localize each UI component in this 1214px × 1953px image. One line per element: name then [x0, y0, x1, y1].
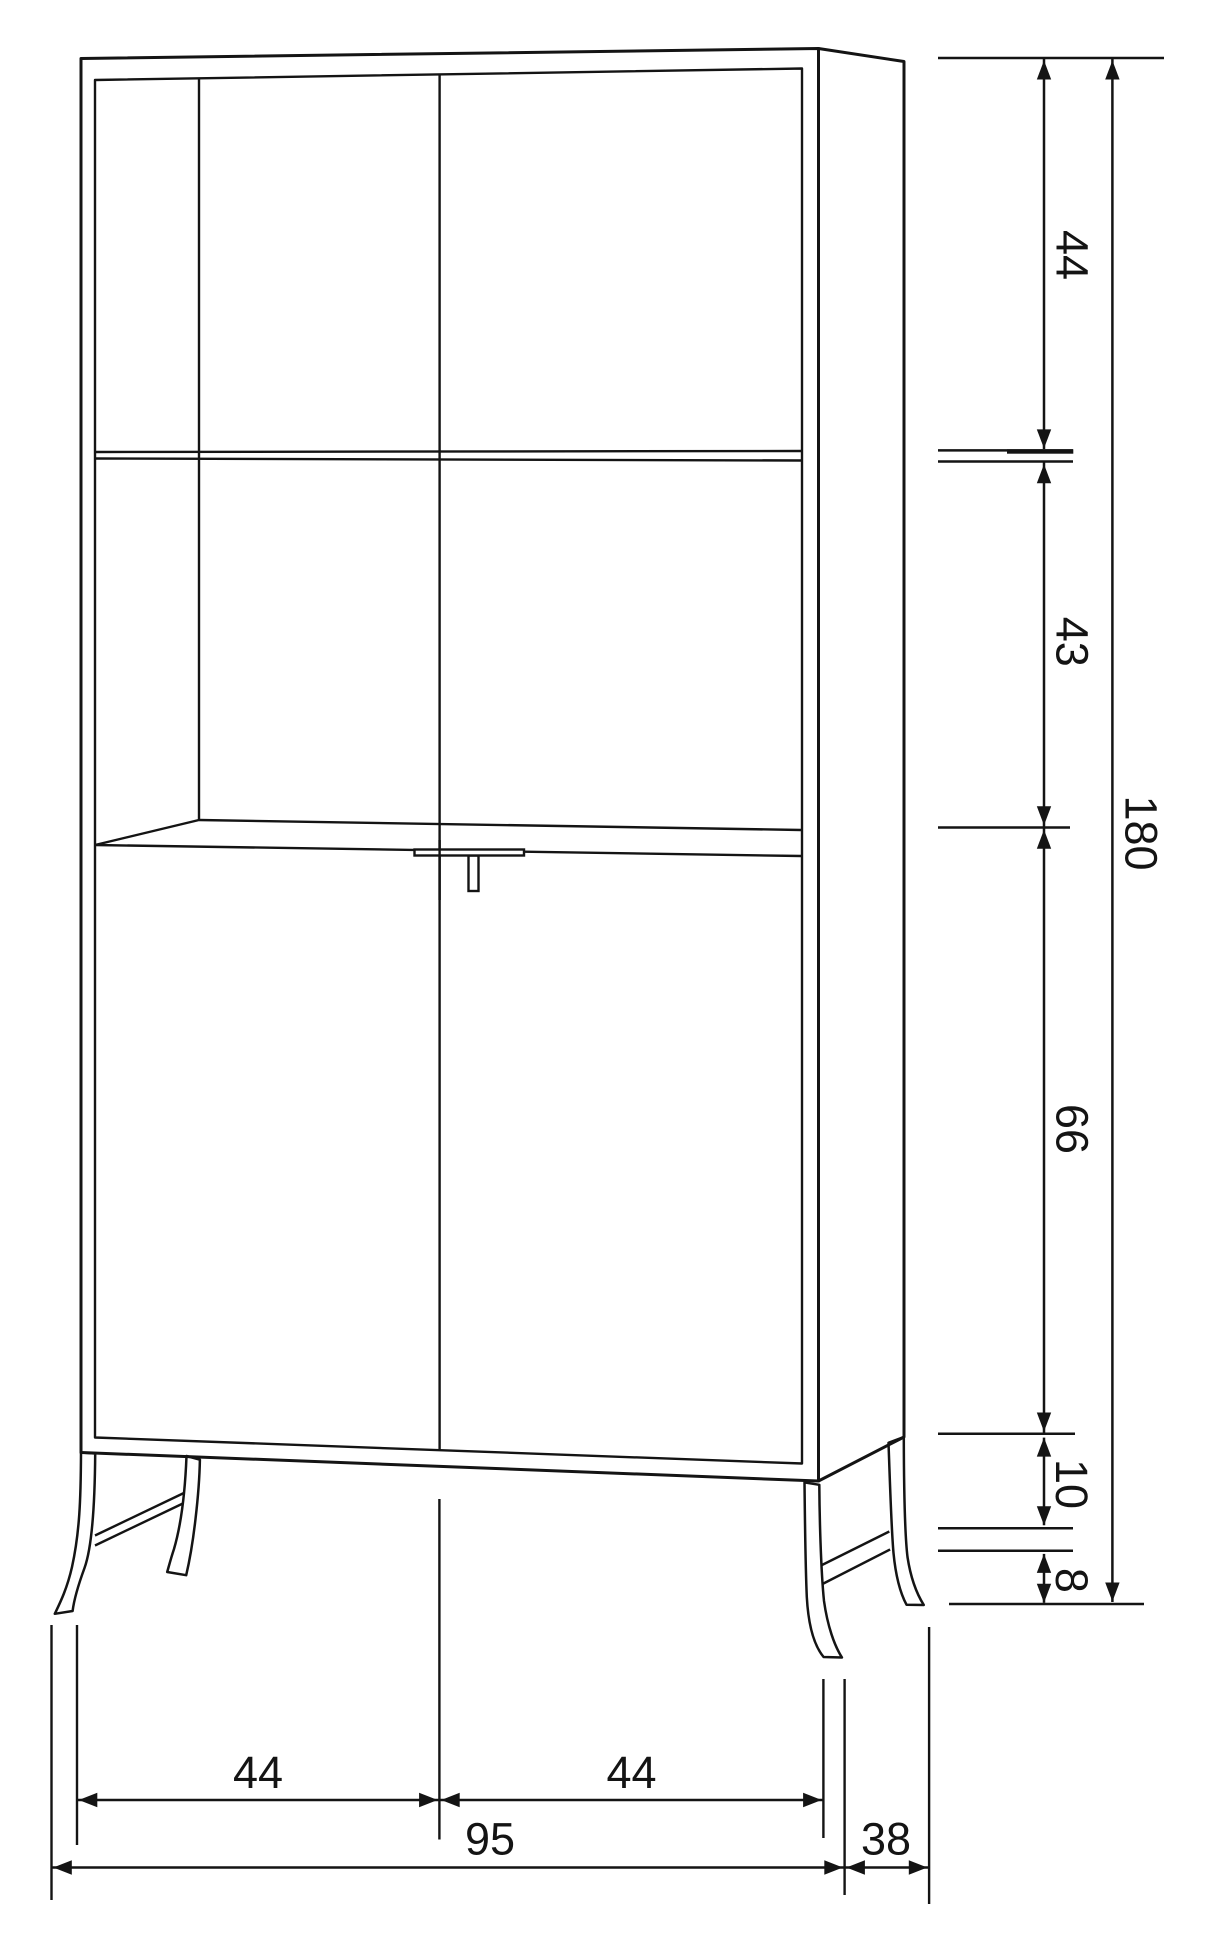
svg-text:66: 66 [1047, 1104, 1098, 1154]
svg-text:44: 44 [233, 1747, 283, 1798]
svg-text:180: 180 [1116, 795, 1167, 870]
svg-text:95: 95 [465, 1814, 515, 1865]
svg-text:44: 44 [1047, 230, 1098, 280]
svg-text:38: 38 [861, 1814, 911, 1865]
svg-text:8: 8 [1046, 1568, 1097, 1593]
svg-text:43: 43 [1047, 617, 1098, 667]
svg-text:44: 44 [606, 1747, 656, 1798]
svg-text:10: 10 [1046, 1459, 1097, 1509]
